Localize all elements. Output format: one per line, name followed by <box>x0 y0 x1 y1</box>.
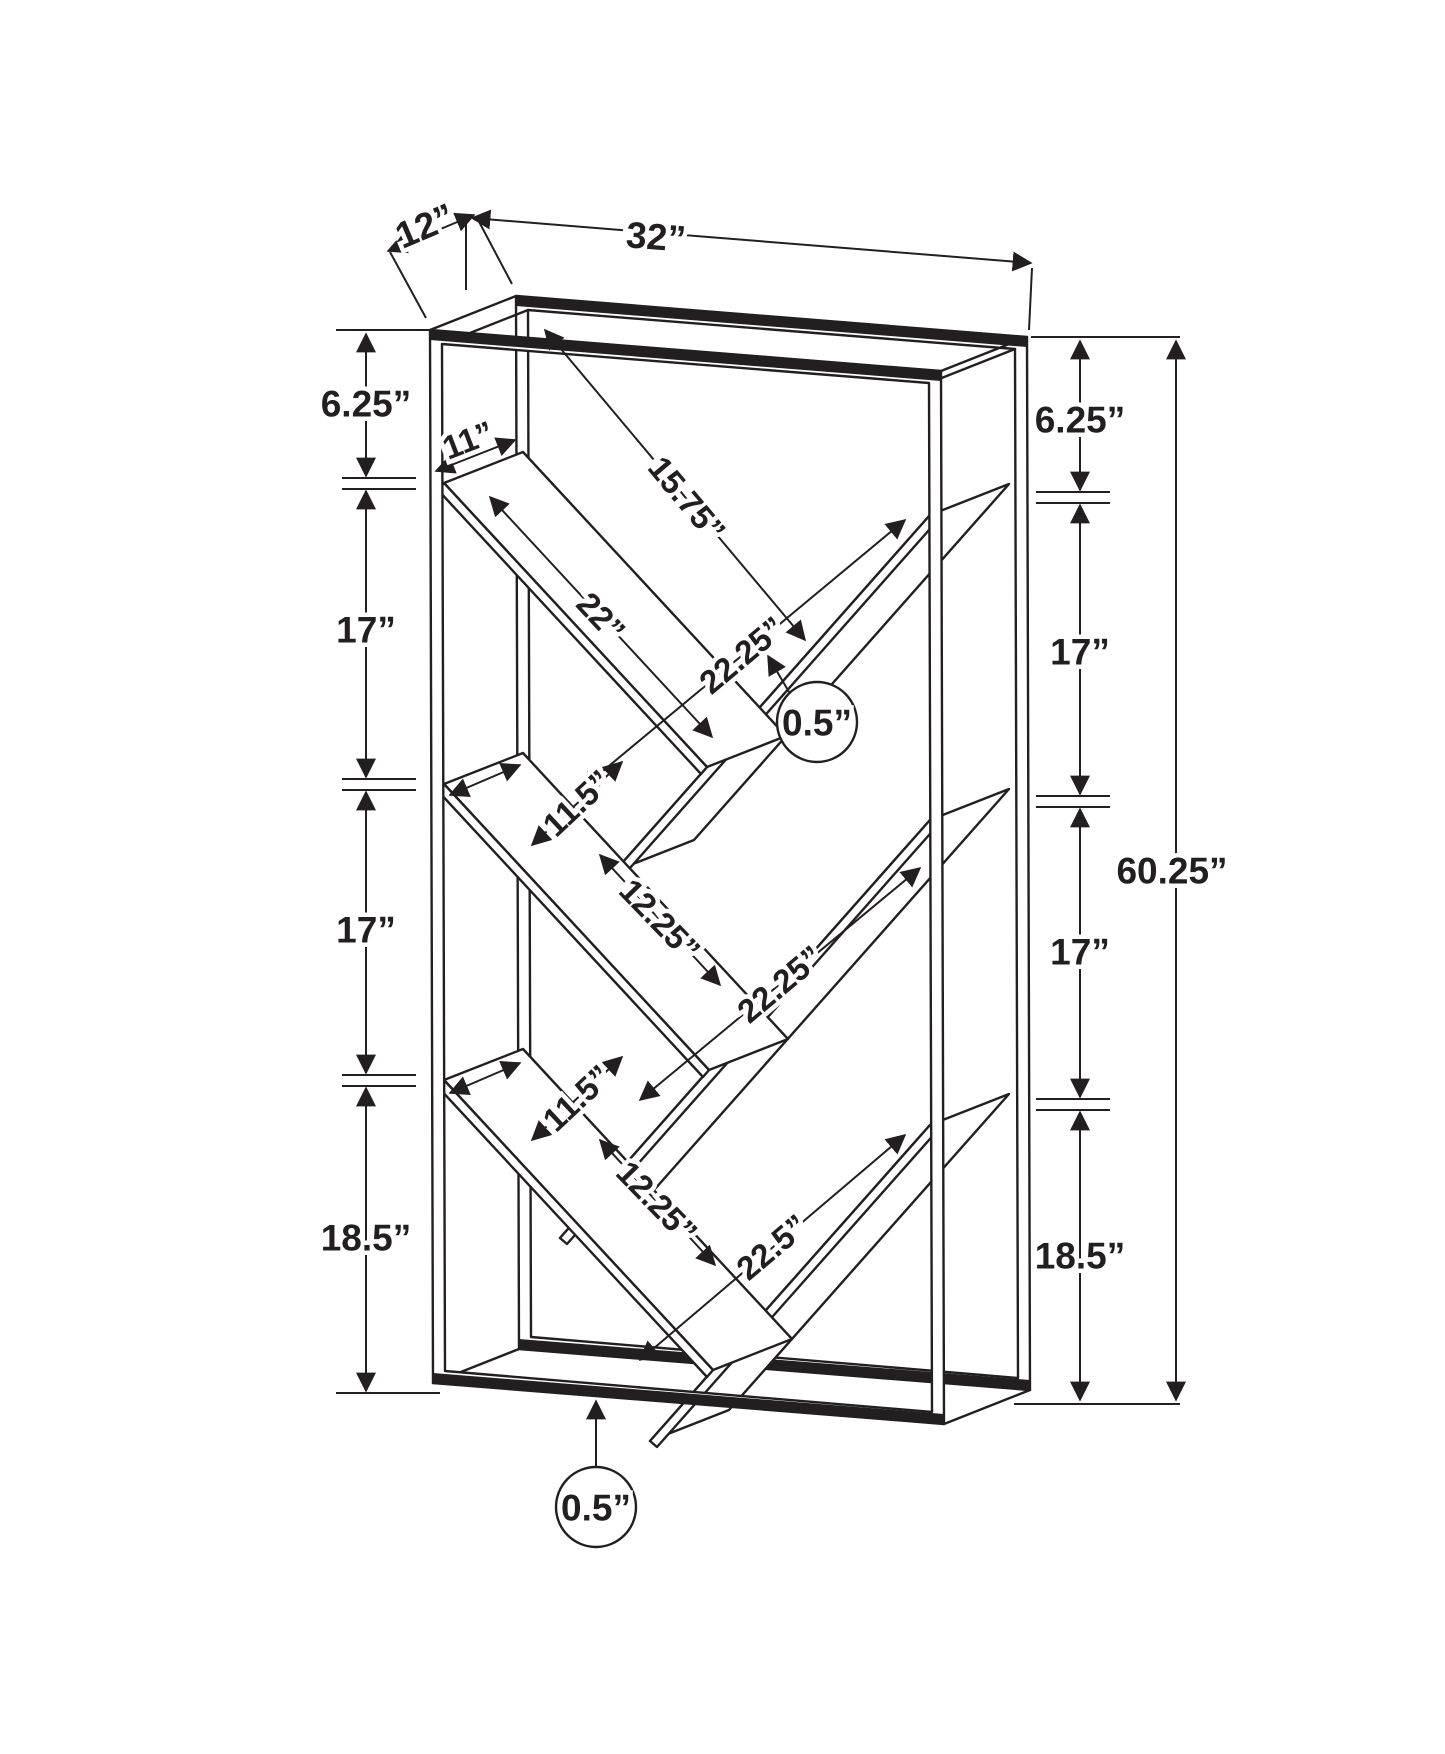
right-segment-label: 18.5” <box>1035 1236 1126 1277</box>
shelf-top-face <box>444 1049 792 1370</box>
left-segment-label: 17” <box>336 610 396 651</box>
left-segment-label: 18.5” <box>321 1218 412 1259</box>
extension-line <box>1029 268 1032 330</box>
left-dimension-chain: 6.25” 17” 17” 18.5” <box>321 330 440 1393</box>
shelf-left-2 <box>438 753 788 1077</box>
depth-dimension-label: 12” <box>390 195 461 256</box>
bookcase-dimension-diagram: 12” 32” 6.25” 17” 17” 18.5” <box>0 0 1445 1754</box>
left-segment-label: 6.25” <box>321 384 412 425</box>
shelf-width-label: 11” <box>437 414 498 467</box>
shelf-top-face <box>444 753 788 1070</box>
bookcase-structure <box>430 296 1030 1447</box>
right-segment-label: 17” <box>1050 932 1110 973</box>
right-segment-label: 17” <box>1050 632 1110 673</box>
extension-line <box>390 252 426 318</box>
shelf-left-3 <box>438 1049 792 1377</box>
shelf-thickness-label: 0.5” <box>782 703 852 744</box>
clearance-label: 15.75” <box>641 449 733 549</box>
base-thickness-label: 0.5” <box>561 1488 631 1529</box>
overall-height-label: 60.25” <box>1116 851 1227 892</box>
left-segment-label: 17” <box>336 910 396 951</box>
top-left-depth-edge <box>430 296 516 330</box>
bottom-right-depth-edge <box>944 1390 1030 1424</box>
back-top-rail-band <box>516 296 1027 347</box>
diagram-page: 12” 32” 6.25” 17” 17” 18.5” <box>0 0 1445 1754</box>
width-dimension-label: 32” <box>625 214 688 260</box>
right-segment-label: 6.25” <box>1035 400 1126 441</box>
width-dimension-line <box>472 218 1031 263</box>
extension-line <box>476 216 512 284</box>
